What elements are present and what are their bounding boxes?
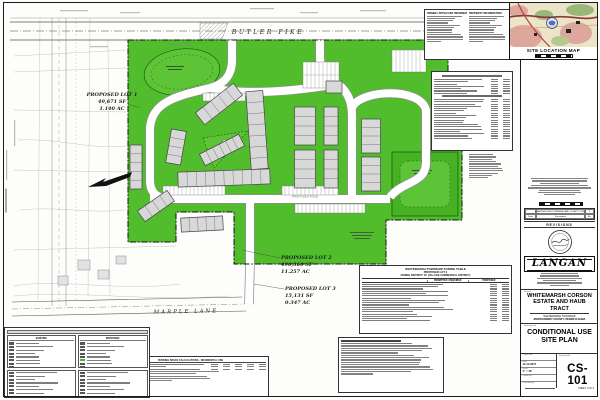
building	[181, 216, 224, 232]
project-name: WHITEMARSH CORSON ESTATE AND HAUB TRACT	[524, 293, 595, 312]
project-rule	[530, 313, 589, 314]
svg-text:0.347 AC: 0.347 AC	[285, 300, 310, 306]
drawing-title-label: Drawing Title	[524, 325, 595, 327]
building	[130, 145, 142, 189]
drawing-title-section: Drawing Title CONDITIONAL USE SITE PLAN	[521, 323, 598, 347]
svg-text:1.140 AC: 1.140 AC	[99, 106, 124, 112]
titleblock-notes	[521, 178, 598, 197]
titleblock-fields: Project No. Date 12-14-2017 Scale 1" = 4…	[521, 353, 598, 387]
table-header-bar	[442, 75, 502, 77]
site-location-map	[510, 3, 597, 47]
left-road	[52, 18, 66, 306]
table-header-bar	[442, 95, 502, 97]
legend-proposed-pane: PROPOSED	[78, 335, 148, 368]
legend-existing-header: EXISTING	[9, 337, 75, 341]
site-location-map-panel: SITE LOCATION MAP	[509, 2, 598, 60]
general-notes-panel	[338, 337, 444, 393]
langan-logo-box: LANGAN	[524, 256, 595, 272]
zoning-data-rows-bottom	[434, 99, 510, 139]
building	[324, 150, 338, 188]
proposed-road-label: PROPOSED ROAD	[292, 195, 319, 199]
owner-property-info-box: OWNER / APPLICANT INFORMATION PROPERTY I…	[424, 9, 511, 60]
zoning-table-rows	[362, 284, 509, 322]
drawing-title: CONDITIONAL USE SITE PLAN	[524, 329, 595, 346]
svg-text:PROPOSED LOT 3: PROPOSED LOT 3	[284, 286, 336, 292]
owner-info-text	[427, 16, 467, 43]
sheet-of-label: SHEET 1 OF 3	[578, 387, 594, 390]
title-block: REVISED PER TOWNSHIP AND COUNTY COMMENTS…	[520, 2, 598, 397]
notes-heading-bar	[341, 340, 401, 342]
building	[362, 119, 381, 153]
field-list: Project No. Date 12-14-2017 Scale 1" = 4…	[521, 354, 557, 388]
property-info-column: PROPERTY INFORMATION	[469, 12, 509, 58]
field-date: Date 12-14-2017	[521, 361, 556, 368]
legend-existing-rows	[9, 342, 75, 368]
legend-proposed-header: PROPOSED	[80, 337, 146, 341]
svg-text:PROPOSED LOT 1: PROPOSED LOT 1	[86, 92, 138, 98]
site-map-caption: SITE LOCATION MAP	[510, 47, 597, 53]
graphic-scale-bar	[539, 202, 583, 206]
zoning-col-spacer	[362, 280, 427, 282]
lot3-label: PROPOSED LOT 3 15,131 SF 0.347 AC	[284, 286, 336, 306]
zoning-data-rows-top	[434, 79, 510, 94]
building	[362, 157, 381, 191]
field-project-no: Project No.	[521, 354, 556, 361]
svg-text:15,131 SF: 15,131 SF	[285, 293, 313, 299]
legend-extra-pane-left	[7, 370, 77, 398]
project-location-county: MONTGOMERY COUNTY, PENNSYLVANIA	[524, 318, 595, 321]
legend-panel: EXISTING PROPOSED	[4, 327, 150, 398]
general-notes-text	[341, 343, 441, 374]
site-map-scalebar	[535, 54, 573, 58]
legend-existing-pane: EXISTING	[7, 335, 77, 368]
plan-notes-text	[469, 154, 513, 178]
building	[295, 107, 316, 145]
building	[326, 81, 342, 93]
zoning-table-column-headers: PERMITTED / REQUIRED PROPOSED	[362, 280, 509, 283]
property-info-text	[469, 16, 509, 43]
zoning-table-panel: WHITEMARSH TOWNSHIP ZONING TABLE PROPOSE…	[359, 265, 512, 334]
field-drawn-by: Drawn By	[521, 375, 556, 382]
plan-notes	[468, 153, 514, 201]
legend-proposed-rows	[80, 342, 146, 368]
revisions-table: REVISED PER TOWNSHIP AND COUNTY COMMENTS…	[524, 208, 595, 220]
butler-pike-label: BUTLER PIKE	[231, 29, 304, 36]
plan-sheet: BUTLER PIKE MARPLE LANE PROPOSED ROAD PR…	[0, 0, 600, 400]
zoning-col-proposed: PROPOSED	[468, 280, 509, 282]
firm-name: LANGAN	[525, 259, 594, 269]
north-arrow-icon	[88, 172, 132, 187]
zoning-col-permitted: PERMITTED / REQUIRED	[427, 280, 468, 282]
field-scale: Scale 1" = 40'	[521, 368, 556, 375]
svg-text:11.257 AC: 11.257 AC	[281, 269, 310, 275]
svg-text:490,360 SF: 490,360 SF	[281, 262, 313, 268]
rev-header-description: Description	[536, 214, 585, 219]
marple-lane-label: MARPLE LANE	[153, 308, 219, 315]
titleblock-footer: SHEET 1 OF 3	[521, 387, 598, 390]
owner-info-header: OWNER / APPLICANT INFORMATION	[427, 12, 467, 15]
legend-extra-pane-right	[78, 370, 148, 398]
zoning-data-tables	[431, 71, 513, 151]
existing-houses	[58, 256, 126, 285]
legend-extra-rows-right	[80, 372, 146, 394]
lot2-label: PROPOSED LOT 2 490,360 SF 11.257 AC	[280, 255, 332, 275]
building	[178, 169, 270, 187]
rev-header-date: Date	[525, 214, 536, 219]
edge-note-left	[6, 189, 7, 213]
svg-text:49,671 SF: 49,671 SF	[98, 99, 126, 105]
building	[295, 150, 316, 188]
svg-text:PROPOSED LOT 2: PROPOSED LOT 2	[280, 255, 332, 261]
legend-title-bar	[7, 330, 148, 334]
sheet-number: CS-101	[559, 363, 596, 387]
legend-extra-rows-left	[9, 372, 75, 394]
drawing-no-label: Drawing No.	[559, 355, 596, 357]
firm-address-text	[521, 273, 598, 287]
property-info-header: PROPERTY INFORMATION	[469, 12, 509, 15]
footer-bar	[525, 388, 555, 389]
rev-header-no: No.	[585, 214, 594, 219]
drawing-number-cell: Drawing No. CS-101	[557, 354, 598, 388]
logo-rule-bottom	[527, 270, 592, 271]
site-map-scalebar-row	[510, 54, 597, 58]
zoning-table-district: ZONING DISTRICT: VC (VILLAGE COMMERCIAL …	[362, 274, 509, 279]
project-name-section: Project WHITEMARSH CORSON ESTATE AND HAU…	[521, 289, 598, 322]
revisions-title: REVISIONS	[524, 221, 595, 228]
owner-info-column: OWNER / APPLICANT INFORMATION	[427, 12, 467, 58]
engineer-seal	[521, 229, 598, 255]
building	[324, 107, 338, 145]
